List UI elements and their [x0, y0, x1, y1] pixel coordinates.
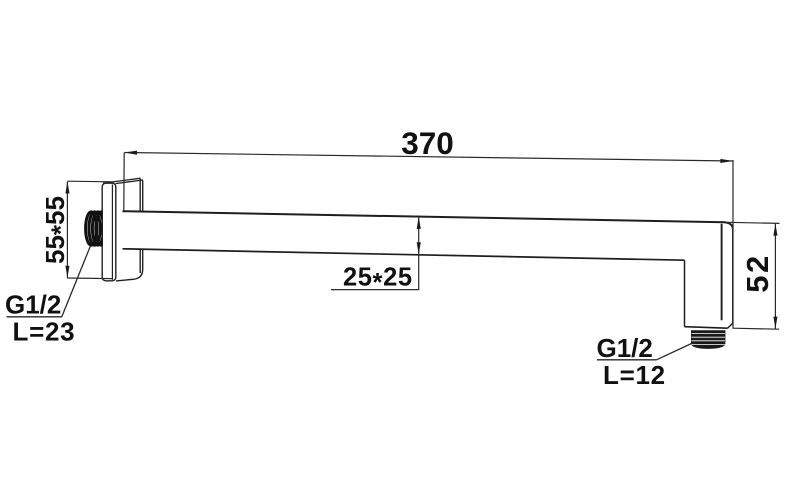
svg-text:G1/2: G1/2 [5, 290, 61, 320]
svg-text:G1/2: G1/2 [597, 333, 653, 363]
svg-text:52: 52 [740, 253, 775, 292]
svg-text:L=23: L=23 [13, 317, 76, 347]
svg-text:55*55: 55*55 [40, 196, 76, 264]
svg-text:L=12: L=12 [603, 360, 666, 390]
svg-text:25*25: 25*25 [343, 263, 413, 297]
svg-text:370: 370 [401, 125, 454, 161]
